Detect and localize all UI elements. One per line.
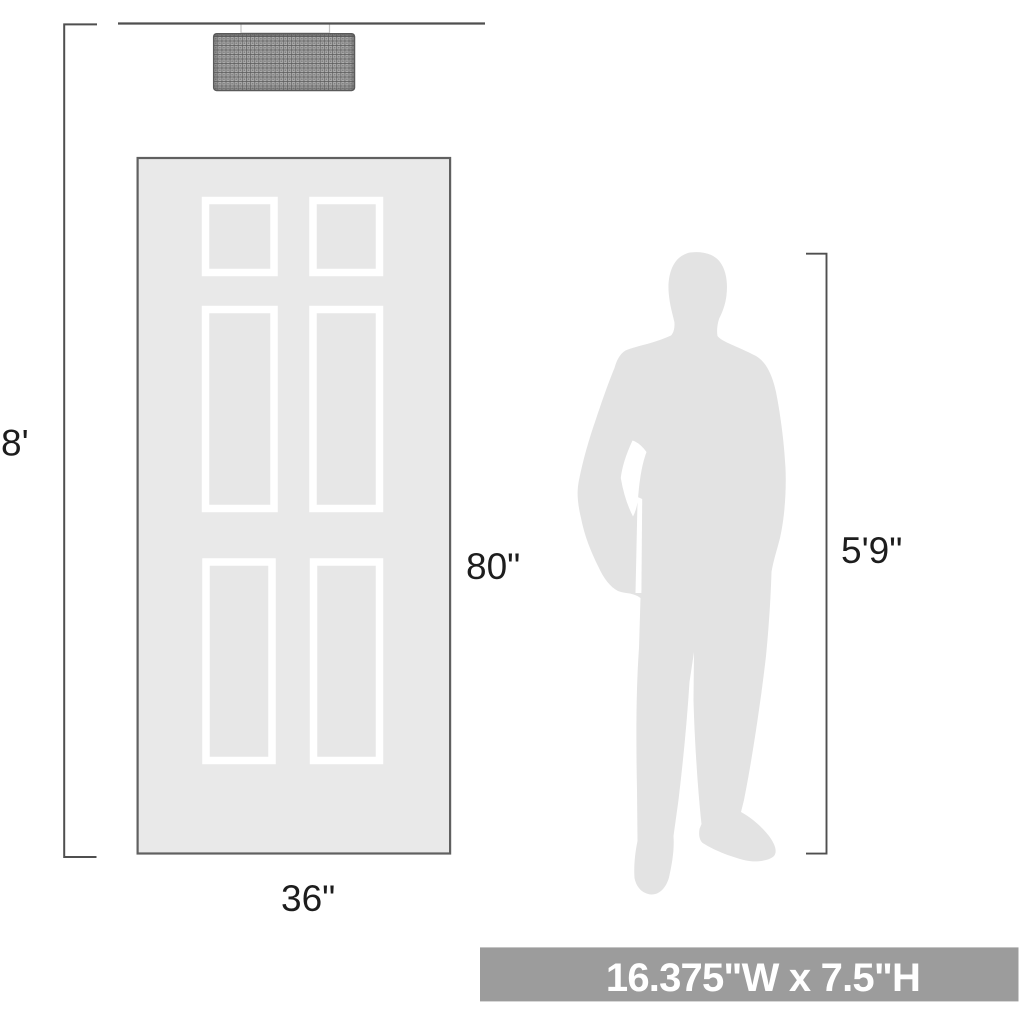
svg-text:36": 36": [281, 878, 335, 919]
svg-text:5'9": 5'9": [841, 530, 902, 571]
svg-text:16.375"W x 7.5"H: 16.375"W x 7.5"H: [606, 956, 920, 1000]
svg-text:80": 80": [466, 546, 520, 587]
svg-text:8': 8': [1, 423, 29, 464]
